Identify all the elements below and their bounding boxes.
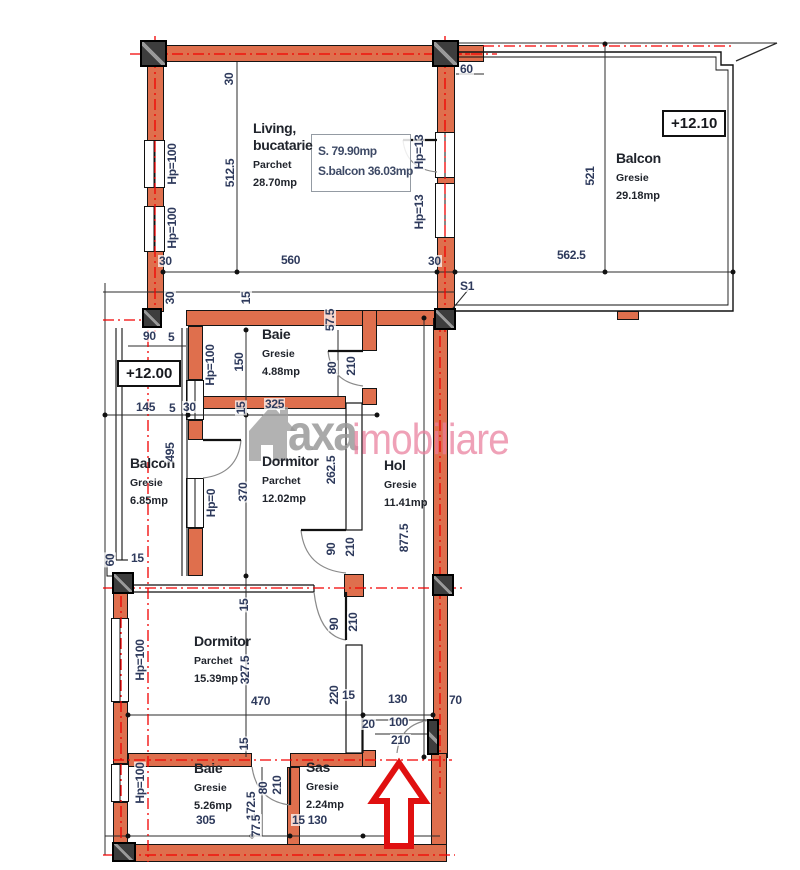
dimension-label: 327.5 xyxy=(239,655,251,686)
room-floor-type: Gresie xyxy=(384,480,427,491)
dimension-label: 20 xyxy=(361,718,376,730)
dimension-label: Hp=13 xyxy=(413,194,425,231)
dimension-label: 210 xyxy=(347,611,359,632)
dimension-label: 70 xyxy=(448,694,463,706)
dimension-label: 30 xyxy=(223,72,235,87)
room-floor-type: Gresie xyxy=(130,478,175,489)
structural-column xyxy=(140,40,167,67)
room-label-hol: HolGresie11.41mp xyxy=(384,457,427,509)
dimension-label: 370 xyxy=(237,481,249,502)
dimension-label: 15 xyxy=(240,291,252,306)
dimension-label: 80 xyxy=(257,781,269,796)
dimension-label: 210 xyxy=(344,536,356,557)
structural-column xyxy=(432,40,459,67)
dimension-label: S1 xyxy=(459,280,475,292)
dimension-label: 512.5 xyxy=(224,158,236,189)
room-floor-type: Gresie xyxy=(262,349,300,360)
room-floor-type: Parchet xyxy=(262,476,319,487)
dimension-label: Hp=100 xyxy=(166,206,178,249)
area-summary-box: S. 79.90mp S.balcon 36.03mp xyxy=(311,134,411,192)
dimension-label: 562.5 xyxy=(556,249,587,261)
dimension-label: 15 xyxy=(238,598,250,613)
room-area: 29.18mp xyxy=(616,190,661,202)
room-area: 6.85mp xyxy=(130,495,175,507)
total-area-label: S. 79.90mp xyxy=(318,141,410,161)
room-name: Balcon xyxy=(616,150,661,167)
dimension-label: 15 xyxy=(130,552,145,564)
dimension-label: 325 xyxy=(264,398,285,410)
level-marker: +12.00 xyxy=(117,360,181,387)
room-name: Baie xyxy=(262,326,300,343)
room-label-living: Living,bucatarieParchet28.70mp xyxy=(253,120,313,189)
room-area: 4.88mp xyxy=(262,366,300,378)
level-marker: +12.10 xyxy=(662,110,726,137)
room-name: bucatarie xyxy=(253,137,313,154)
dimension-label: 15 130 xyxy=(291,814,328,826)
room-label-balcon-top: BalconGresie29.18mp xyxy=(616,150,661,202)
room-name: Baie xyxy=(194,760,232,777)
dimension-label: 130 xyxy=(387,693,408,705)
room-label-baie-2: BaieGresie5.26mp xyxy=(194,760,232,812)
dimension-label: 90 xyxy=(328,617,340,632)
room-label-sas: SasGresie2.24mp xyxy=(306,759,344,811)
dimension-label: 521 xyxy=(584,165,596,186)
room-name: Hol xyxy=(384,457,427,474)
dimension-label: Hp=100 xyxy=(204,343,216,386)
structural-column xyxy=(142,308,162,328)
dimension-label: 560 xyxy=(280,254,301,266)
structural-column xyxy=(434,308,456,330)
dimension-label: 145 xyxy=(135,401,156,413)
room-floor-type: Gresie xyxy=(194,783,232,794)
room-area: 11.41mp xyxy=(384,497,427,509)
room-area: 5.26mp xyxy=(194,800,232,812)
dimension-label: Hp=13 xyxy=(413,134,425,171)
structural-column xyxy=(112,842,136,862)
entrance-arrow-icon xyxy=(373,763,425,846)
dimension-label: 90 xyxy=(142,330,157,342)
dimension-label: 305 xyxy=(195,814,216,826)
room-floor-type: Parchet xyxy=(253,160,313,171)
dimension-label: Hp=0 xyxy=(205,488,217,518)
dimension-label: 210 xyxy=(390,734,411,746)
dimension-label: 150 xyxy=(233,351,245,372)
dimension-label: 5 xyxy=(167,331,175,343)
dimension-label: 57.5 xyxy=(324,308,336,332)
dimension-label: Hp=100 xyxy=(134,761,146,804)
room-label-baie-1: BaieGresie4.88mp xyxy=(262,326,300,378)
dimension-label: 5 xyxy=(168,402,176,414)
dimension-label: 90 xyxy=(325,542,337,557)
room-name: Sas xyxy=(306,759,344,776)
dimension-label: 60 xyxy=(104,553,116,568)
room-name: Dormitor xyxy=(194,633,251,650)
dimension-label: 30 xyxy=(182,401,197,413)
floor-plan-canvas: axa imobiliare S. 79.90mp S.balcon 36.03… xyxy=(0,0,800,870)
dimension-label: 210 xyxy=(271,774,283,795)
dimension-label: 30 xyxy=(427,255,442,267)
room-floor-type: Gresie xyxy=(306,782,344,793)
dimension-label: 495 xyxy=(164,441,176,462)
dimension-label: 100 xyxy=(388,716,409,728)
room-area: 2.24mp xyxy=(306,799,344,811)
dimension-label: 15 xyxy=(235,401,247,416)
structural-column xyxy=(112,572,134,594)
room-name: Living, xyxy=(253,120,313,137)
room-area: 28.70mp xyxy=(253,177,313,189)
dimension-label: Hp=100 xyxy=(134,638,146,681)
dimension-label: 30 xyxy=(158,255,173,267)
dimension-label: 15 xyxy=(238,737,250,752)
room-label-balcon-left: BalconGresie6.85mp xyxy=(130,455,175,507)
dimension-label: 15 xyxy=(341,689,356,701)
dimension-label: 210 xyxy=(345,355,357,376)
structural-column xyxy=(432,574,454,596)
dimension-label: 262.5 xyxy=(325,455,337,486)
dimension-label: 470 xyxy=(250,695,271,707)
dimension-label: 30 xyxy=(164,291,176,306)
dimension-label: 60 xyxy=(459,63,474,75)
dimension-label: 77.5 xyxy=(250,814,262,838)
room-label-dormitor-1: DormitorParchet12.02mp xyxy=(262,453,319,505)
room-name: Dormitor xyxy=(262,453,319,470)
dimension-label: 80 xyxy=(326,361,338,376)
balcony-area-label: S.balcon 36.03mp xyxy=(318,161,410,181)
room-area: 12.02mp xyxy=(262,493,319,505)
dimension-label: 877.5 xyxy=(398,523,410,554)
dimension-label: 220 xyxy=(328,684,340,705)
dimension-label: Hp=100 xyxy=(166,142,178,185)
room-floor-type: Gresie xyxy=(616,173,661,184)
structural-column xyxy=(427,719,439,755)
